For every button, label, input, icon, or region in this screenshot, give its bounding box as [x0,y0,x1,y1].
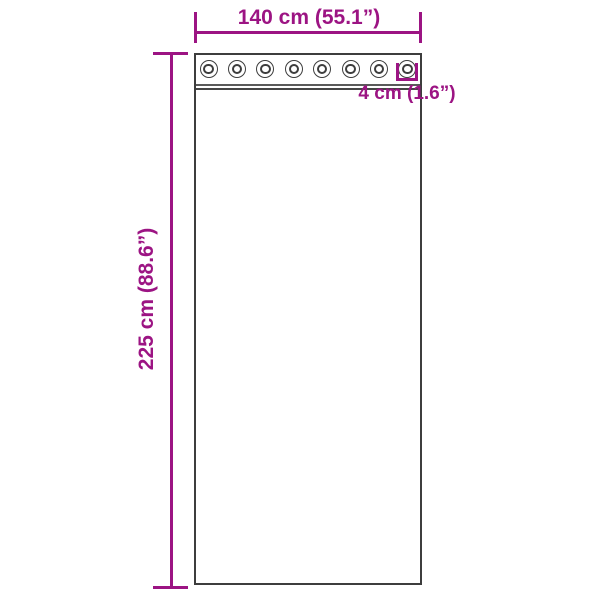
grommet-eyelet [313,60,331,78]
grommet-eyelet-inner-ring [345,64,356,75]
height-dimension-bottom-tick [153,586,188,589]
width-dimension-line [195,31,422,34]
height-dimension-top-tick [153,52,188,55]
height-dimension-line [170,54,173,587]
width-dimension-label: 140 cm (55.1”) [189,7,429,29]
grommet-eyelet-inner-ring [317,64,328,75]
dimension-diagram: 140 cm (55.1”) 225 cm (88.6”) 4 cm (1.6”… [0,0,600,600]
grommet-eyelet [285,60,303,78]
grommet-eyelet [342,60,360,78]
grommet-diameter-bracket [396,63,418,81]
grommet-diameter-label: 4 cm (1.6”) [326,84,488,104]
width-dimension-left-tick [194,12,197,43]
height-dimension-label: 225 cm (88.6”) [136,219,158,379]
grommet-eyelet [228,60,246,78]
curtain-panel-outline [194,53,422,585]
width-dimension-right-tick [419,12,422,43]
grommet-row [196,60,420,78]
grommet-eyelet-inner-ring [203,64,214,75]
grommet-eyelet [200,60,218,78]
grommet-eyelet-inner-ring [289,64,300,75]
grommet-eyelet-inner-ring [374,64,385,75]
grommet-eyelet-inner-ring [232,64,243,75]
grommet-eyelet [256,60,274,78]
grommet-eyelet [370,60,388,78]
grommet-eyelet-inner-ring [260,64,271,75]
